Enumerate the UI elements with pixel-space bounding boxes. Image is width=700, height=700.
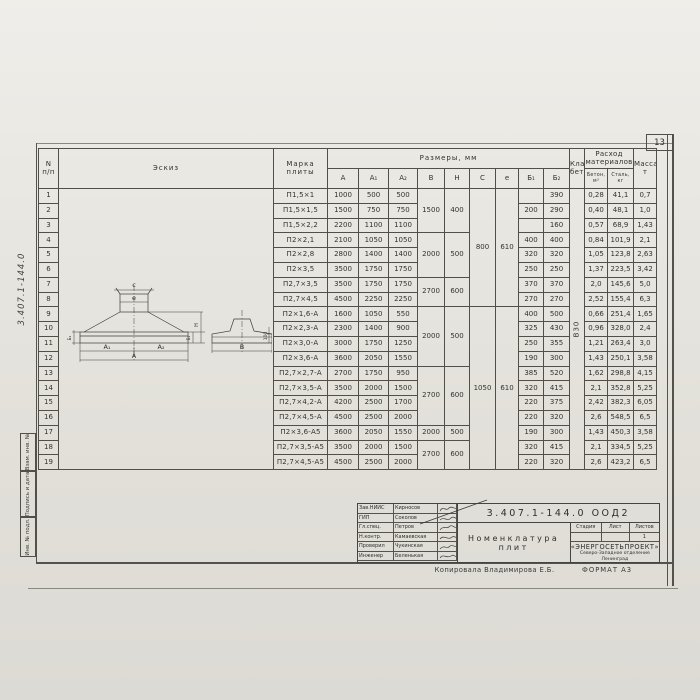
cell-b2: 400 (544, 233, 570, 248)
cell-b: 2000 (418, 307, 445, 366)
person-role: Инженер (358, 552, 394, 562)
cell-b: 2000 (418, 233, 445, 277)
cell-beton: 1,62 (585, 366, 608, 381)
cell-a: 3500 (328, 381, 359, 396)
organization-branch: Северо-Западное отделение (571, 551, 659, 557)
header-dim-e: e (496, 169, 519, 189)
cell-b1 (519, 189, 544, 204)
cell-a: 4500 (328, 410, 359, 425)
cell-stal: 48,1 (608, 203, 634, 218)
cell-num: 8 (39, 292, 59, 307)
cell-a2: 1400 (389, 248, 418, 263)
cell-a1: 2050 (359, 425, 389, 440)
cell-marka: П2×2,1 (274, 233, 328, 248)
cell-num: 18 (39, 440, 59, 455)
cell-beton: 2,42 (585, 396, 608, 411)
cell-a2: 900 (389, 322, 418, 337)
cell-a: 4200 (328, 396, 359, 411)
stage-label: Стадия (571, 523, 602, 533)
signature (438, 542, 457, 552)
cell-b2: 290 (544, 203, 570, 218)
cell-a2: 1500 (389, 440, 418, 455)
cell-b1: 220 (519, 396, 544, 411)
sheet-label: Лист (602, 523, 630, 533)
cell-b1: 385 (519, 366, 544, 381)
cell-num: 15 (39, 396, 59, 411)
signature (438, 552, 457, 562)
cell-marka: П2,7×4,2-А (274, 396, 328, 411)
organization-city: Ленинград (571, 557, 659, 563)
nomenclature-table: N п/п Эскиз Марка плиты Размеры, мм Клас… (38, 148, 657, 470)
cell-a: 3600 (328, 425, 359, 440)
cell-a: 2200 (328, 218, 359, 233)
cell-a1: 2050 (359, 351, 389, 366)
cell-massa: 5,25 (634, 381, 657, 396)
cell-beton: 1,37 (585, 262, 608, 277)
cell-a2: 950 (389, 366, 418, 381)
cell-b: 2700 (418, 277, 445, 307)
cell-massa: 6,3 (634, 292, 657, 307)
cell-e: 610 (496, 189, 519, 307)
cell-massa: 5,25 (634, 440, 657, 455)
person-role: ГИП (358, 514, 394, 524)
cell-e: 610 (496, 307, 519, 470)
cell-num: 2 (39, 203, 59, 218)
dim-label-b1: Б₁ (67, 335, 73, 340)
cell-stal: 328,0 (608, 322, 634, 337)
person-name: Беленькая (394, 552, 438, 562)
cell-b: 2000 (418, 425, 445, 440)
cell-a1: 500 (359, 189, 389, 204)
cell-a1: 1400 (359, 248, 389, 263)
cell-beton: 1,21 (585, 336, 608, 351)
cell-b: 2700 (418, 366, 445, 425)
cell-massa: 1,0 (634, 203, 657, 218)
cell-c: 1050 (470, 307, 496, 470)
cell-a1: 2500 (359, 410, 389, 425)
header-stal: Сталь, кг (608, 169, 634, 189)
cell-a1: 750 (359, 203, 389, 218)
person-name: Петров (394, 523, 438, 533)
title-block: Зав.НИИС Кирносов ГИП Соколов Гл.спец. П… (357, 503, 660, 563)
header-dim-a2: A₂ (389, 169, 418, 189)
cell-b1: 320 (519, 440, 544, 455)
cell-stal: 251,4 (608, 307, 634, 322)
cell-a: 4500 (328, 292, 359, 307)
frame-right-outer (672, 134, 674, 586)
cell-a2: 1700 (389, 396, 418, 411)
cell-marka: П2×3,5 (274, 262, 328, 277)
person-role: Н.контр. (358, 533, 394, 543)
cell-b1: 400 (519, 233, 544, 248)
cell-b2: 520 (544, 366, 570, 381)
person-role: Проверил (358, 542, 394, 552)
title-block-people-grid: Зав.НИИС Кирносов ГИП Соколов Гл.спец. П… (358, 504, 458, 562)
cell-b1: 190 (519, 351, 544, 366)
cell-beton: 1,43 (585, 351, 608, 366)
cell-massa: 3,0 (634, 336, 657, 351)
cell-stal: 548,5 (608, 410, 634, 425)
cell-stal: 223,5 (608, 262, 634, 277)
cell-a1: 1050 (359, 233, 389, 248)
title-block-right: 3.407.1-144.0 ООД2 Номенклатура плит Ста… (458, 504, 659, 562)
cell-num: 10 (39, 322, 59, 337)
cell-marka: П1,5×1,5 (274, 203, 328, 218)
margin-code: 3.407.1-144.0 (17, 229, 27, 349)
cell-stal: 382,3 (608, 396, 634, 411)
cell-marka: П2×1,6-А (274, 307, 328, 322)
cell-a1: 2500 (359, 396, 389, 411)
cell-c: 800 (470, 189, 496, 307)
cell-marka: П2,7×4,5-А5 (274, 455, 328, 470)
cell-a: 3500 (328, 262, 359, 277)
cell-b1: 370 (519, 277, 544, 292)
cell-beton: 2,52 (585, 292, 608, 307)
cell-a: 3000 (328, 336, 359, 351)
cell-b2: 500 (544, 307, 570, 322)
cell-a1: 1050 (359, 307, 389, 322)
cell-b2: 320 (544, 248, 570, 263)
person-role: Гл.спец. (358, 523, 394, 533)
cell-beton: 2,6 (585, 455, 608, 470)
header-klass: Класс бетона (570, 149, 585, 189)
cell-b2: 415 (544, 381, 570, 396)
header-dim-a: A (328, 169, 359, 189)
dim-label-edge: 100 (263, 332, 269, 341)
cell-a2: 1550 (389, 351, 418, 366)
cell-a: 1600 (328, 307, 359, 322)
cell-num: 16 (39, 410, 59, 425)
cell-b1: 200 (519, 203, 544, 218)
dim-label-h: H (194, 323, 200, 327)
organization-block: «ЭНЕРГОСЕТЬПРОЕКТ» Северо-Западное отдел… (571, 542, 659, 562)
cell-massa: 3,58 (634, 351, 657, 366)
cell-marka: П2,7×4,5 (274, 292, 328, 307)
header-dim-b1: Б₁ (519, 169, 544, 189)
cell-b: 2700 (418, 440, 445, 470)
cell-a: 1500 (328, 203, 359, 218)
cell-massa: 6,5 (634, 455, 657, 470)
table-header-row-1: N п/п Эскиз Марка плиты Размеры, мм Клас… (39, 149, 657, 169)
cell-b2: 270 (544, 292, 570, 307)
cell-massa: 6,5 (634, 410, 657, 425)
cell-num: 13 (39, 366, 59, 381)
cell-massa: 2,1 (634, 233, 657, 248)
dim-label-b2: Б₂ (186, 335, 192, 340)
cell-num: 11 (39, 336, 59, 351)
cell-a1: 2250 (359, 292, 389, 307)
cell-a2: 500 (389, 189, 418, 204)
cell-beton: 0,28 (585, 189, 608, 204)
cell-beton: 0,40 (585, 203, 608, 218)
cell-a2: 550 (389, 307, 418, 322)
cell-a2: 1250 (389, 336, 418, 351)
cell-a1: 2000 (359, 440, 389, 455)
format-note: ФОРМАТ А3 (582, 566, 632, 574)
header-razmery: Размеры, мм (328, 149, 570, 169)
cell-beton: 2,1 (585, 440, 608, 455)
cell-num: 12 (39, 351, 59, 366)
drawing-title: Номенклатура плит (458, 523, 571, 562)
header-beton: Бетон, м³ (585, 169, 608, 189)
cell-marka: П2,7×3,5-А5 (274, 440, 328, 455)
header-rashod: Расход материалов (585, 149, 634, 169)
frame-top (36, 143, 674, 144)
header-marka: Марка плиты (274, 149, 328, 189)
cell-a1: 2500 (359, 455, 389, 470)
cell-beton: 2,0 (585, 277, 608, 292)
cell-stal: 41,1 (608, 189, 634, 204)
sheet-value (602, 533, 630, 543)
cell-beton: 1,05 (585, 248, 608, 263)
cell-marka: П2×3,6-А5 (274, 425, 328, 440)
person-role: Зав.НИИС (358, 504, 394, 514)
cell-massa: 3,58 (634, 425, 657, 440)
header-sketch: Эскиз (59, 149, 274, 189)
cell-b2: 415 (544, 440, 570, 455)
cell-b2: 375 (544, 396, 570, 411)
cell-massa: 1,65 (634, 307, 657, 322)
cell-a1: 1750 (359, 366, 389, 381)
cell-a2: 1500 (389, 381, 418, 396)
cell-stal: 423,2 (608, 455, 634, 470)
cell-a: 4500 (328, 455, 359, 470)
cell-b2: 320 (544, 410, 570, 425)
cell-marka: П2×3,0-А (274, 336, 328, 351)
dim-label-b: B (240, 343, 244, 351)
cell-a2: 1550 (389, 425, 418, 440)
cell-num: 5 (39, 248, 59, 263)
stamp-inv-podl: Инв. № подл. (20, 517, 36, 557)
cell-stal: 123,8 (608, 248, 634, 263)
cell-a: 1000 (328, 189, 359, 204)
cell-stal: 263,4 (608, 336, 634, 351)
cell-h: 500 (445, 425, 470, 440)
cell-b2: 300 (544, 351, 570, 366)
cell-b1: 270 (519, 292, 544, 307)
cell-beton: 2,6 (585, 410, 608, 425)
cell-num: 1 (39, 189, 59, 204)
cell-marka: П2,7×4,5-А (274, 410, 328, 425)
cell-h: 400 (445, 189, 470, 233)
cell-b2: 320 (544, 455, 570, 470)
cell-stal: 145,6 (608, 277, 634, 292)
cell-b2: 370 (544, 277, 570, 292)
cell-a: 3500 (328, 277, 359, 292)
cell-marka: П2×3,6-А (274, 351, 328, 366)
scan-edge-bottom (28, 588, 678, 589)
cell-massa: 5,0 (634, 277, 657, 292)
frame-right-inner (667, 134, 668, 586)
cell-num: 19 (39, 455, 59, 470)
cell-b2: 160 (544, 218, 570, 233)
person-name: Камаевская (394, 533, 438, 543)
cell-a: 2700 (328, 366, 359, 381)
cell-h: 500 (445, 307, 470, 366)
cell-a2: 2000 (389, 410, 418, 425)
cell-num: 9 (39, 307, 59, 322)
stamp-vzam-inv: Взам. инв. № (20, 433, 36, 471)
cell-num: 3 (39, 218, 59, 233)
header-dim-b: B (418, 169, 445, 189)
dim-label-c: c (132, 281, 136, 289)
cell-concrete-class: В30 (570, 189, 585, 470)
sheets-label: Листов (630, 523, 659, 533)
cell-h: 600 (445, 277, 470, 307)
organization-name: «ЭНЕРГОСЕТЬПРОЕКТ» (571, 543, 659, 551)
dim-label-a1: A₁ (103, 343, 110, 351)
cell-h: 500 (445, 233, 470, 277)
cell-stal: 334,5 (608, 440, 634, 455)
cell-stal: 155,4 (608, 292, 634, 307)
scanned-drawing-sheet: { "page": { "number": "13", "margin_code… (0, 0, 700, 700)
person-name: Чукинская (394, 542, 438, 552)
stamp-podpis-data: Подпись и дата (20, 471, 36, 517)
dim-label-e: e (132, 294, 136, 302)
cell-b1: 400 (519, 307, 544, 322)
signature (438, 514, 457, 524)
dim-label-a: A (132, 352, 137, 360)
cell-b2: 300 (544, 425, 570, 440)
cell-beton: 0,96 (585, 322, 608, 337)
cell-stal: 101,9 (608, 233, 634, 248)
stage-sheet-block: Стадия Лист Листов 1 «ЭНЕРГОСЕТЬПРОЕКТ» … (571, 523, 659, 562)
header-dim-h: H (445, 169, 470, 189)
cell-a2: 2250 (389, 292, 418, 307)
cell-b1 (519, 218, 544, 233)
cell-a: 2800 (328, 248, 359, 263)
cell-beton: 0,84 (585, 233, 608, 248)
header-dim-c: C (470, 169, 496, 189)
cell-b1: 190 (519, 425, 544, 440)
cell-a2: 2000 (389, 455, 418, 470)
cell-marka: П2,7×2,7-А (274, 366, 328, 381)
cell-a1: 2000 (359, 381, 389, 396)
cell-stal: 298,8 (608, 366, 634, 381)
cell-num: 14 (39, 381, 59, 396)
header-massa: Масса, т (634, 149, 657, 189)
cell-num: 17 (39, 425, 59, 440)
cell-stal: 352,8 (608, 381, 634, 396)
cell-massa: 4,15 (634, 366, 657, 381)
cell-stal: 250,1 (608, 351, 634, 366)
cell-a: 2300 (328, 322, 359, 337)
cell-marka: П2×2,3-А (274, 322, 328, 337)
cell-b2: 250 (544, 262, 570, 277)
cell-a2: 1750 (389, 262, 418, 277)
cell-h: 600 (445, 366, 470, 425)
cell-num: 6 (39, 262, 59, 277)
sketch-cell: c e A₁ A₂ A B H Б₂ Б₁ 100 (59, 189, 274, 470)
cell-b2: 390 (544, 189, 570, 204)
cell-a: 3500 (328, 440, 359, 455)
cell-massa: 0,7 (634, 189, 657, 204)
header-dim-b2: Б₂ (544, 169, 570, 189)
stage-value (571, 533, 602, 543)
cell-num: 4 (39, 233, 59, 248)
cell-b1: 220 (519, 455, 544, 470)
signature (438, 533, 457, 543)
cell-massa: 1,43 (634, 218, 657, 233)
cell-massa: 3,42 (634, 262, 657, 277)
cell-massa: 2,4 (634, 322, 657, 337)
dim-label-a2: A₂ (157, 343, 164, 351)
frame-left (36, 143, 37, 563)
cell-massa: 2,63 (634, 248, 657, 263)
header-num: N п/п (39, 149, 59, 189)
cell-b2: 355 (544, 336, 570, 351)
cell-num: 7 (39, 277, 59, 292)
cell-b1: 325 (519, 322, 544, 337)
cell-h: 600 (445, 440, 470, 470)
person-name: Кирносов (394, 504, 438, 514)
plate-sketch: c e A₁ A₂ A B H Б₂ Б₁ 100 (59, 190, 272, 468)
cell-b2: 430 (544, 322, 570, 337)
cell-a1: 1400 (359, 322, 389, 337)
cell-a2: 1100 (389, 218, 418, 233)
cell-a1: 1100 (359, 218, 389, 233)
cell-stal: 450,3 (608, 425, 634, 440)
cell-a: 3600 (328, 351, 359, 366)
cell-marka: П2×2,8 (274, 248, 328, 263)
cell-marka: П1,5×2,2 (274, 218, 328, 233)
cell-beton: 0,57 (585, 218, 608, 233)
cell-b: 1500 (418, 189, 445, 233)
cell-b1: 250 (519, 262, 544, 277)
cell-marka: П2,7×3,5-А (274, 381, 328, 396)
cell-a1: 1750 (359, 277, 389, 292)
cell-marka: П2,7×3,5 (274, 277, 328, 292)
cell-a2: 750 (389, 203, 418, 218)
signature (438, 504, 457, 514)
sheets-value: 1 (630, 533, 659, 543)
cell-beton: 1,43 (585, 425, 608, 440)
cell-massa: 6,05 (634, 396, 657, 411)
cell-beton: 2,1 (585, 381, 608, 396)
cell-beton: 0,66 (585, 307, 608, 322)
cell-a1: 1750 (359, 262, 389, 277)
cell-a2: 1050 (389, 233, 418, 248)
cell-b1: 320 (519, 248, 544, 263)
stamp-column: Взам. инв. № Подпись и дата Инв. № подл. (20, 433, 36, 557)
cell-stal: 68,9 (608, 218, 634, 233)
cell-b1: 220 (519, 410, 544, 425)
person-name: Соколов (394, 514, 438, 524)
cell-a: 2100 (328, 233, 359, 248)
header-dim-a1: A₁ (359, 169, 389, 189)
document-number: 3.407.1-144.0 ООД2 (458, 504, 659, 523)
cell-marka: П1,5×1 (274, 189, 328, 204)
cell-a1: 1750 (359, 336, 389, 351)
signature (438, 523, 457, 533)
table-row: 1 (39, 189, 657, 204)
cell-a2: 1750 (389, 277, 418, 292)
cell-b1: 250 (519, 336, 544, 351)
cell-b1: 320 (519, 381, 544, 396)
copied-by-note: Копировала Владимирова Е.Б. (412, 566, 577, 574)
